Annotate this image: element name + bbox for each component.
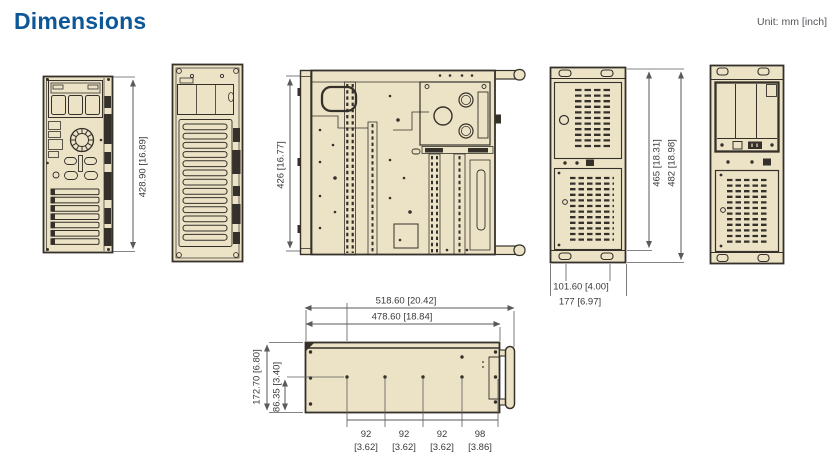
front-view-drawing [711, 66, 784, 264]
chassis-handle [500, 347, 515, 409]
rack-ears [495, 70, 525, 256]
rear-view-drawing [44, 77, 113, 253]
dimensions-page: Dimensions Unit: mm [inch] [0, 0, 837, 464]
dim-label-top-depth: 426 [16.77] [276, 141, 287, 189]
top-view-drawing [298, 70, 526, 256]
technical-line-art [0, 0, 837, 464]
dim-label-side-depth: 177 [6.97] [559, 297, 601, 308]
dim-label-side-body-height: 465 [18.31] [652, 139, 663, 187]
dim-label-hole-spacing-1: 92 [3.62] [354, 428, 378, 454]
dim-label-hole-spacing-4: 98 [3.86] [468, 428, 492, 454]
dim-label-foot-spacing: 101.60 [4.00] [553, 282, 608, 293]
dim-label-body-length: 478.60 [18.84] [372, 312, 433, 323]
side-view-drawing [551, 68, 626, 263]
side-panel-view-drawing [173, 65, 243, 262]
dim-label-overall-length: 518.60 [20.42] [376, 296, 437, 307]
dim-label-hole-spacing-2: 92 [3.62] [392, 428, 416, 454]
dim-label-side-overall-height: 482 [18.98] [667, 139, 678, 187]
dim-label-hole-spacing-3: 92 [3.62] [430, 428, 454, 454]
bottom-profile-drawing [306, 343, 515, 413]
dim-label-rear-height: 428.90 [16.89] [138, 137, 149, 198]
dim-label-bottom-height: 172.70 [6.80] [252, 349, 263, 404]
dim-label-bottom-half-height: 86.35 [3.40] [272, 362, 283, 412]
